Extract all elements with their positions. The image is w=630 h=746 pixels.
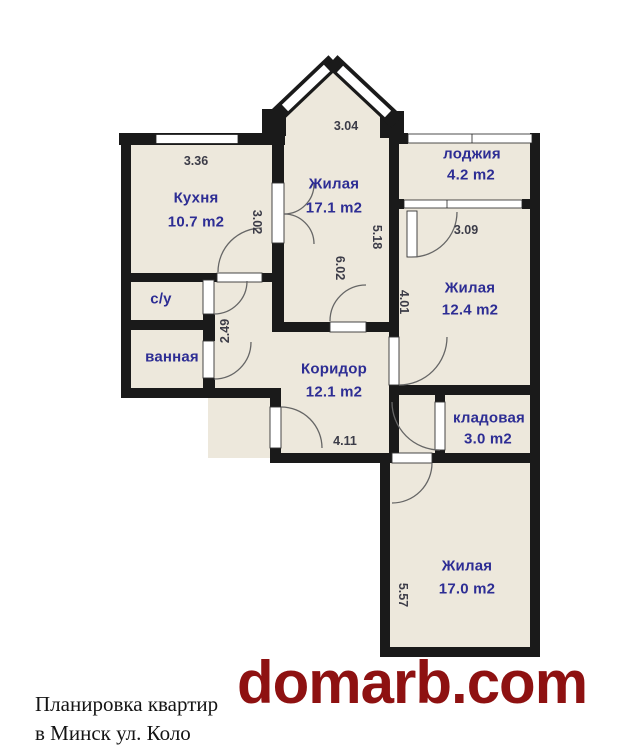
dim-label: 3.36 — [184, 154, 208, 168]
room-label-storeroom: кладовая — [453, 410, 525, 427]
room-label-living3: Жилая — [442, 558, 492, 575]
kitchen-window — [156, 135, 238, 144]
kitchen-door — [217, 273, 262, 282]
balcony-window — [404, 200, 522, 208]
entry-door — [270, 407, 281, 448]
living3-door — [392, 453, 432, 463]
loggia-window — [408, 134, 532, 143]
room-area-storeroom: 3.0 m2 — [464, 431, 512, 448]
room-area-kitchen: 10.7 m2 — [168, 214, 224, 231]
living1-double-door — [272, 183, 284, 243]
room-label-bathroom: ванная — [145, 349, 199, 366]
living1-corridor-door — [330, 322, 366, 332]
dim-label: 3.09 — [454, 223, 478, 237]
room-label-loggia: лоджия — [443, 146, 501, 163]
dim-label: 5.57 — [396, 583, 410, 607]
wc-door — [203, 280, 214, 314]
room-area-corridor: 12.1 m2 — [306, 384, 362, 401]
room-area-living2: 12.4 m2 — [442, 302, 498, 319]
dim-label: 3.04 — [334, 119, 358, 133]
dim-label: 5.18 — [370, 225, 384, 249]
caption-line2: в Минск ул. Коло — [35, 721, 191, 746]
watermark: domarb.com — [237, 648, 587, 717]
room-label-wc: с/у — [150, 291, 171, 308]
dim-label: 2.49 — [218, 319, 232, 343]
dim-label: 3.02 — [250, 210, 264, 234]
storeroom-door — [435, 402, 445, 450]
room-area-living3: 17.0 m2 — [439, 581, 495, 598]
room-label-kitchen: Кухня — [174, 190, 219, 207]
room-label-living2: Жилая — [445, 280, 495, 297]
bathroom-door — [203, 341, 214, 378]
dim-label: 4.01 — [397, 290, 411, 314]
dim-label: 6.02 — [333, 256, 347, 280]
room-label-living1: Жилая — [309, 176, 359, 193]
room-area-loggia: 4.2 m2 — [447, 167, 495, 184]
room-area-living1: 17.1 m2 — [306, 200, 362, 217]
caption-line1: Планировка квартир — [35, 692, 218, 717]
balcony-door — [407, 211, 417, 257]
dim-label: 4.11 — [333, 434, 357, 448]
room-label-corridor: Коридор — [301, 361, 367, 378]
living2-door — [389, 337, 399, 385]
